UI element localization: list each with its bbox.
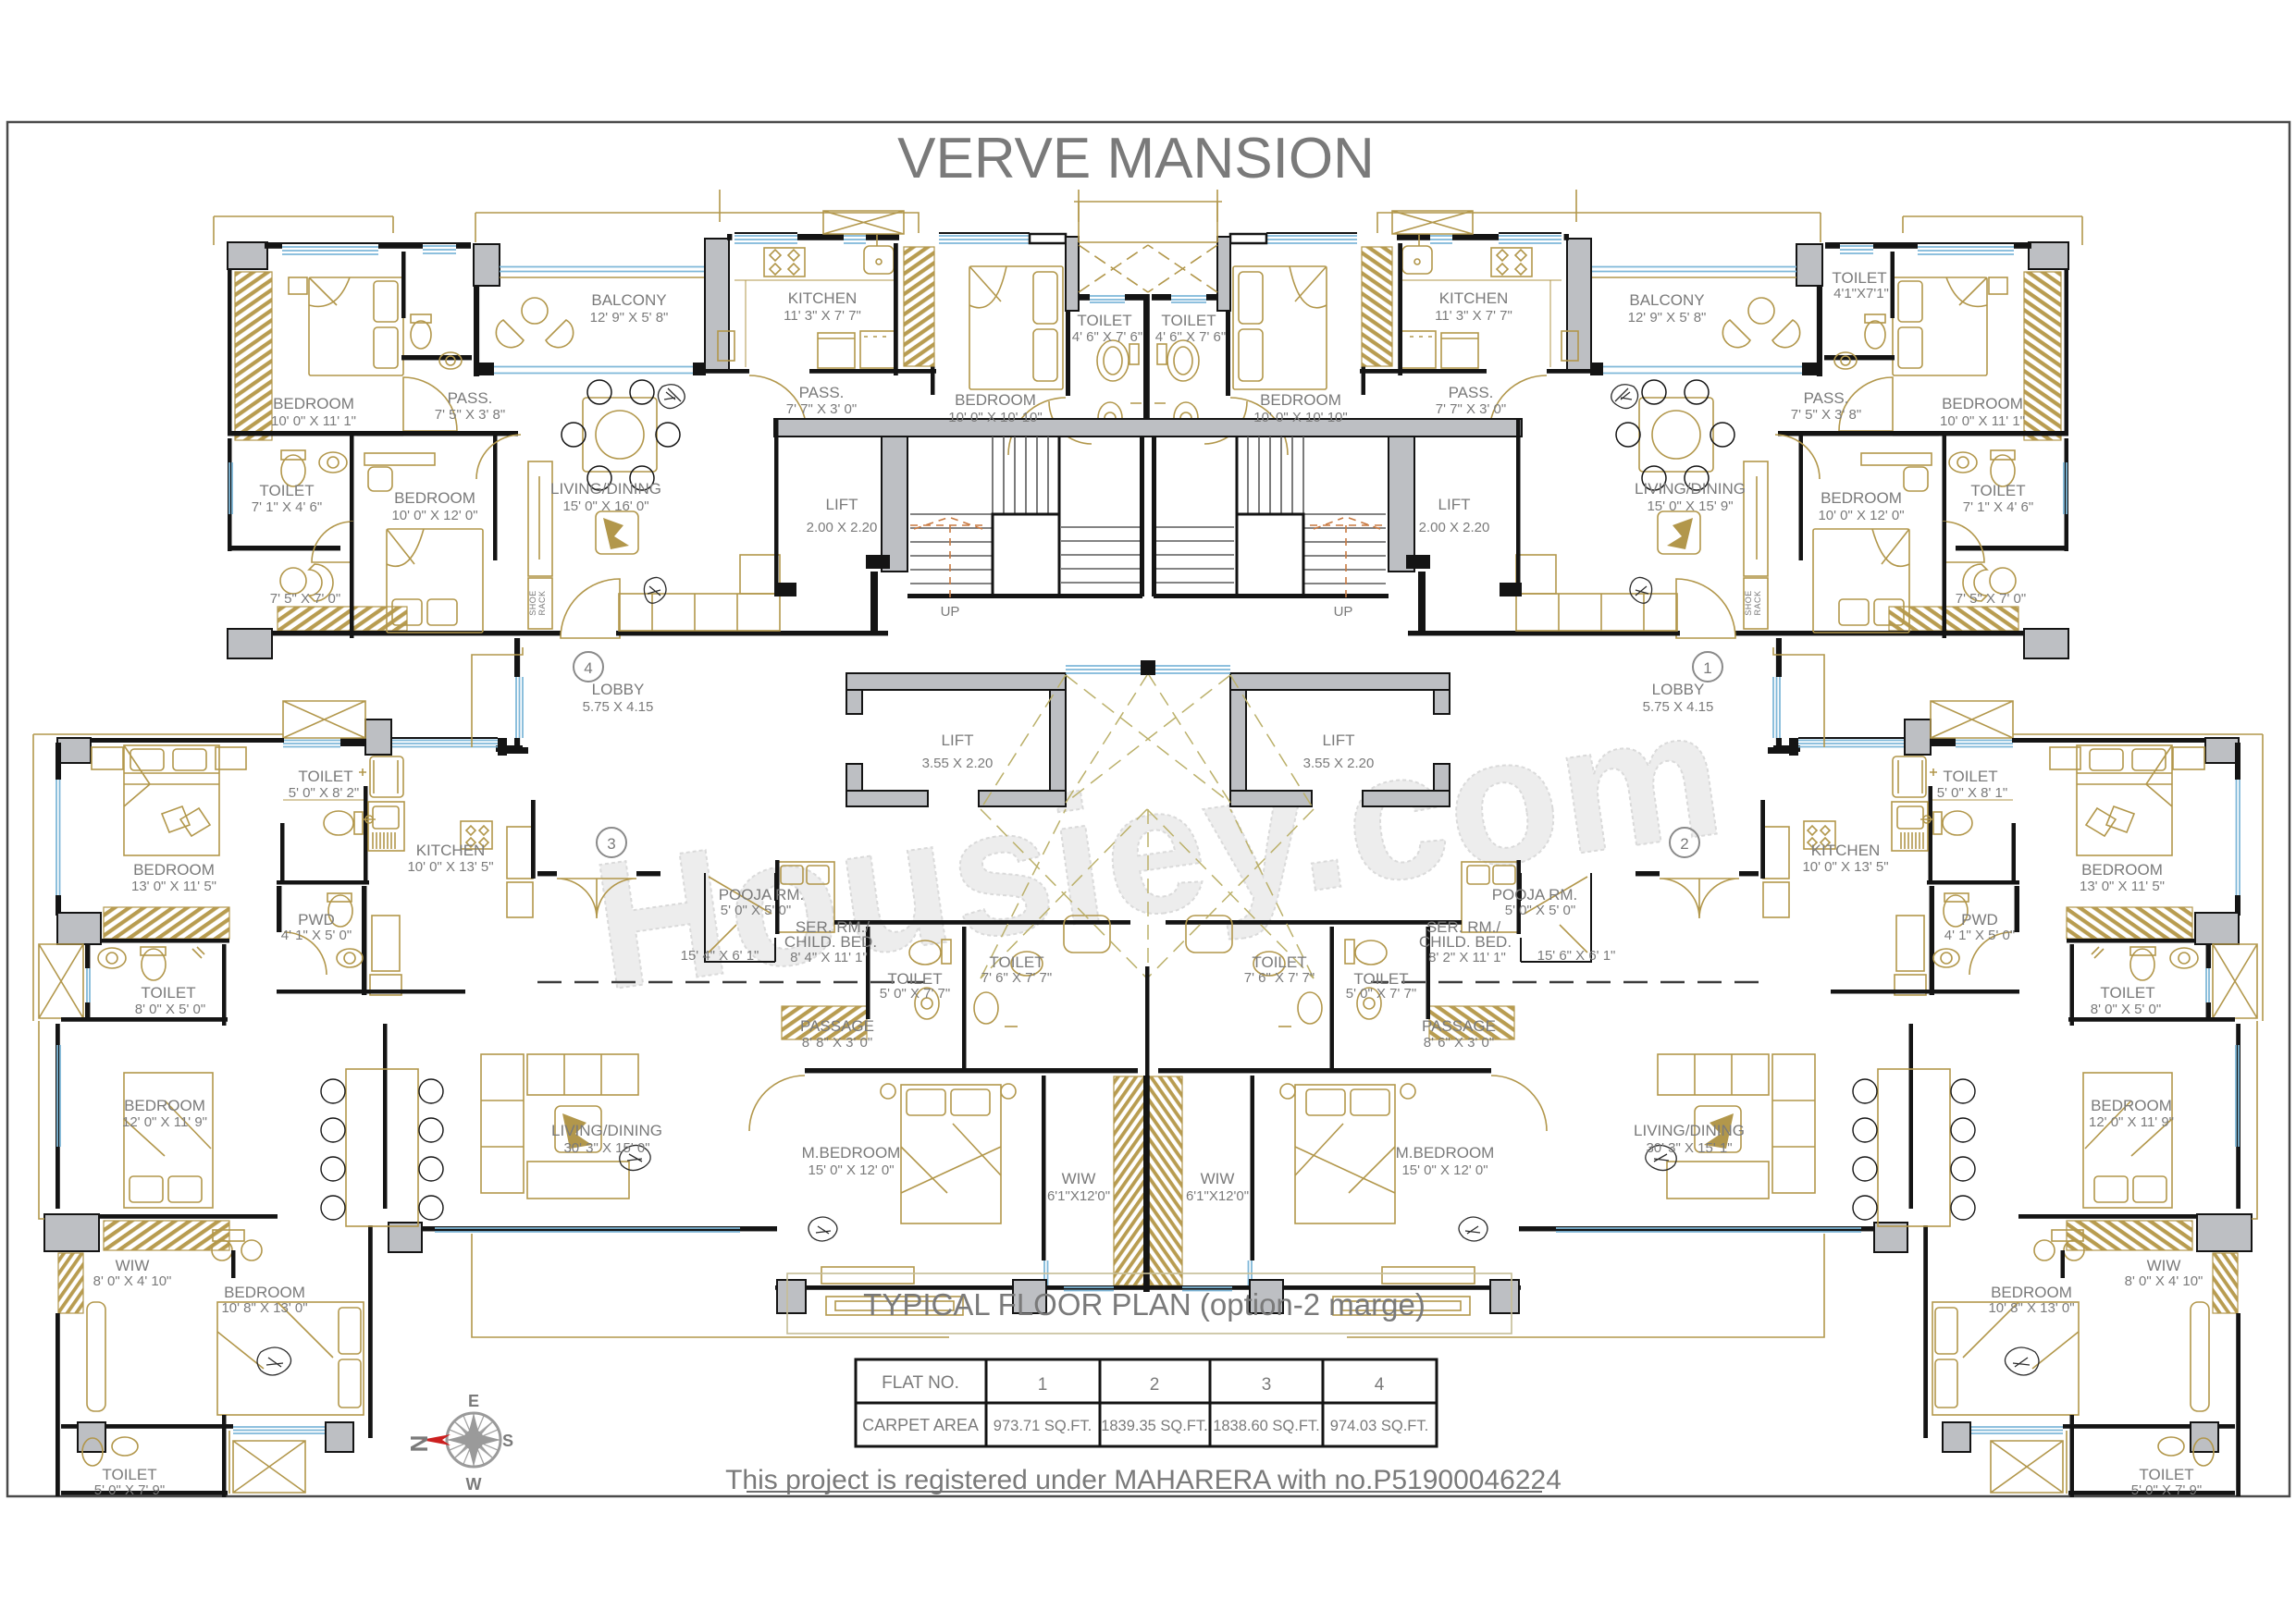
svg-text:12' 0" X 11' 9": 12' 0" X 11' 9" — [2089, 1114, 2174, 1130]
svg-text:BEDROOM: BEDROOM — [1942, 395, 2023, 412]
svg-text:973.71 SQ.FT.: 973.71 SQ.FT. — [994, 1418, 1092, 1434]
svg-text:RACK: RACK — [1753, 590, 1762, 615]
svg-text:5' 0" X 7' 7": 5' 0" X 7' 7" — [1346, 986, 1416, 1002]
svg-text:POOJA RM.: POOJA RM. — [719, 886, 805, 904]
svg-text:UP: UP — [1334, 604, 1353, 620]
svg-text:PWD: PWD — [1961, 911, 1998, 928]
svg-text:N: N — [405, 1435, 433, 1453]
svg-text:TOILET: TOILET — [989, 953, 1043, 971]
svg-text:30' 3" X 15' 1": 30' 3" X 15' 1" — [1646, 1140, 1732, 1156]
svg-text:CHILD. BED.: CHILD. BED. — [784, 933, 877, 951]
svg-text:LIVING/DINING: LIVING/DINING — [550, 480, 661, 498]
svg-text:BEDROOM: BEDROOM — [224, 1284, 305, 1301]
svg-text:PWD: PWD — [298, 911, 335, 928]
svg-text:7' 5" X 3' 8": 7' 5" X 3' 8" — [435, 407, 505, 423]
svg-text:POOJA RM.: POOJA RM. — [1492, 886, 1578, 904]
svg-text:15' 6" X 6' 1": 15' 6" X 6' 1" — [1537, 948, 1616, 964]
svg-text:3.55 X 2.20: 3.55 X 2.20 — [922, 756, 994, 771]
svg-text:8' 2" X 11' 1": 8' 2" X 11' 1" — [1428, 950, 1506, 965]
svg-text:7' 6" X 7' 7": 7' 6" X 7' 7" — [981, 970, 1052, 986]
svg-text:5.75 X 4.15: 5.75 X 4.15 — [1643, 699, 1714, 715]
svg-text:KITCHEN: KITCHEN — [788, 289, 858, 307]
svg-text:4: 4 — [584, 659, 592, 677]
svg-text:3.55 X 2.20: 3.55 X 2.20 — [1303, 756, 1375, 771]
svg-text:RACK: RACK — [537, 590, 547, 615]
svg-text:LIVING/DINING: LIVING/DINING — [1635, 480, 1746, 498]
svg-text:LIFT: LIFT — [826, 496, 858, 513]
svg-text:5' 0" X 7' 7": 5' 0" X 7' 7" — [880, 986, 950, 1002]
svg-text:LIVING/DINING: LIVING/DINING — [1634, 1122, 1745, 1139]
svg-text:4: 4 — [1375, 1375, 1385, 1395]
svg-text:BEDROOM: BEDROOM — [2081, 861, 2163, 879]
svg-text:2.00 X 2.20: 2.00 X 2.20 — [1419, 520, 1490, 535]
svg-text:BEDROOM: BEDROOM — [394, 489, 475, 507]
svg-text:13' 0" X 11' 5": 13' 0" X 11' 5" — [131, 879, 216, 894]
svg-text:E: E — [468, 1392, 479, 1410]
svg-text:8' 8" X 3' 0": 8' 8" X 3' 0" — [802, 1035, 872, 1051]
svg-text:30' 3" X 15' 0": 30' 3" X 15' 0" — [563, 1140, 649, 1156]
svg-text:M.BEDROOM: M.BEDROOM — [802, 1144, 901, 1162]
svg-text:10' 0" X 12' 0": 10' 0" X 12' 0" — [1818, 508, 1904, 523]
svg-text:1839.35 SQ.FT.: 1839.35 SQ.FT. — [1101, 1418, 1208, 1434]
svg-text:12' 0" X 11' 9": 12' 0" X 11' 9" — [122, 1114, 207, 1130]
svg-text:10' 8" X 13' 0": 10' 8" X 13' 0" — [1988, 1300, 2074, 1316]
svg-text:KITCHEN: KITCHEN — [1811, 842, 1881, 859]
svg-text:1: 1 — [1703, 659, 1711, 677]
svg-text:CHILD. BED.: CHILD. BED. — [1419, 933, 1512, 951]
svg-text:4'1"X7'1": 4'1"X7'1" — [1833, 286, 1889, 301]
svg-text:SHOE: SHOE — [528, 590, 537, 616]
svg-text:15' 0" X 15' 9": 15' 0" X 15' 9" — [1647, 498, 1733, 514]
svg-text:5' 0" X 7' 9": 5' 0" X 7' 9" — [2131, 1482, 2202, 1498]
svg-text:2.00 X 2.20: 2.00 X 2.20 — [807, 520, 878, 535]
svg-text:6'1"X12'0": 6'1"X12'0" — [1186, 1188, 1249, 1204]
svg-text:12' 9" X 5' 8": 12' 9" X 5' 8" — [1628, 310, 1707, 326]
svg-text:4' 6" X 7' 6": 4' 6" X 7' 6" — [1072, 329, 1142, 345]
svg-text:7' 5" X 7' 0": 7' 5" X 7' 0" — [1956, 591, 2026, 607]
svg-text:10' 0" X 10' 10": 10' 0" X 10' 10" — [1253, 410, 1347, 425]
svg-text:TOILET: TOILET — [1161, 312, 1216, 329]
svg-text:BEDROOM: BEDROOM — [1821, 489, 1902, 507]
svg-text:TOILET: TOILET — [1943, 768, 1997, 785]
svg-text:W: W — [466, 1475, 482, 1494]
svg-text:5.75 X 4.15: 5.75 X 4.15 — [583, 699, 654, 715]
svg-text:CARPET AREA: CARPET AREA — [862, 1416, 979, 1434]
svg-text:10' 0" X 10' 10": 10' 0" X 10' 10" — [948, 410, 1042, 425]
svg-text:LIFT: LIFT — [1323, 732, 1355, 749]
svg-text:TOILET: TOILET — [102, 1466, 156, 1483]
svg-text:BALCONY: BALCONY — [1629, 291, 1704, 309]
svg-text:BEDROOM: BEDROOM — [2091, 1097, 2172, 1114]
svg-text:12' 9" X 5' 8": 12' 9" X 5' 8" — [590, 310, 669, 326]
svg-text:BEDROOM: BEDROOM — [1260, 391, 1341, 409]
svg-text:7' 1" X 4' 6": 7' 1" X 4' 6" — [1963, 499, 2033, 515]
svg-text:S: S — [502, 1432, 513, 1450]
svg-text:10' 0" X 13' 5": 10' 0" X 13' 5" — [407, 859, 493, 875]
svg-text:TYPICAL FLOOR PLAN (option-2 m: TYPICAL FLOOR PLAN (option-2 marge) — [863, 1287, 1426, 1322]
svg-text:4' 1" X 5' 0": 4' 1" X 5' 0" — [281, 928, 352, 943]
svg-text:10' 0" X 11' 1": 10' 0" X 11' 1" — [271, 413, 356, 429]
svg-text:11' 3" X 7' 7": 11' 3" X 7' 7" — [1435, 308, 1512, 324]
svg-text:5' 0" X 8' 2": 5' 0" X 8' 2" — [289, 785, 359, 801]
svg-text:BEDROOM: BEDROOM — [273, 395, 354, 412]
svg-text:FLAT NO.: FLAT NO. — [882, 1373, 959, 1393]
svg-text:15' 0" X 12' 0": 15' 0" X 12' 0" — [808, 1162, 894, 1178]
svg-text:BEDROOM: BEDROOM — [955, 391, 1036, 409]
svg-text:PASS.: PASS. — [448, 389, 493, 407]
svg-text:PASSAGE: PASSAGE — [800, 1017, 874, 1035]
svg-text:TOILET: TOILET — [141, 984, 195, 1002]
svg-text:TOILET: TOILET — [1252, 953, 1306, 971]
svg-text:WIW: WIW — [2147, 1257, 2181, 1274]
svg-text:M.BEDROOM: M.BEDROOM — [1396, 1144, 1495, 1162]
svg-text:5' 0" X 5' 0": 5' 0" X 5' 0" — [1505, 903, 1575, 918]
svg-text:6'1"X12'0": 6'1"X12'0" — [1047, 1188, 1110, 1204]
svg-text:1838.60 SQ.FT.: 1838.60 SQ.FT. — [1213, 1418, 1320, 1434]
svg-text:SHOE: SHOE — [1744, 590, 1753, 616]
svg-text:7' 5" X 3' 8": 7' 5" X 3' 8" — [1791, 407, 1861, 423]
svg-text:TOILET: TOILET — [2100, 984, 2154, 1002]
svg-text:15' 0" X 12' 0": 15' 0" X 12' 0" — [1401, 1162, 1487, 1178]
svg-text:4' 6" X 7' 6": 4' 6" X 7' 6" — [1155, 329, 1226, 345]
svg-text:PASS.: PASS. — [1449, 384, 1494, 401]
svg-text:UP: UP — [941, 604, 960, 620]
svg-text:BEDROOM: BEDROOM — [133, 861, 215, 879]
svg-text:10' 0" X 12' 0": 10' 0" X 12' 0" — [391, 508, 477, 523]
svg-text:PASS.: PASS. — [1804, 389, 1849, 407]
svg-text:10' 8" X 13' 0": 10' 8" X 13' 0" — [221, 1300, 307, 1316]
svg-text:5' 0" X 8' 1": 5' 0" X 8' 1" — [1937, 785, 2007, 801]
svg-text:8' 4" X 11' 1": 8' 4" X 11' 1" — [790, 950, 868, 965]
svg-text:TOILET: TOILET — [1077, 312, 1131, 329]
svg-text:1: 1 — [1038, 1375, 1048, 1395]
svg-text:15' 0" X 16' 0": 15' 0" X 16' 0" — [562, 498, 648, 514]
svg-text:LOBBY: LOBBY — [1652, 681, 1705, 698]
svg-text:7' 6" X 7' 7": 7' 6" X 7' 7" — [1244, 970, 1315, 986]
svg-text:7' 5" X 7' 0": 7' 5" X 7' 0" — [270, 591, 340, 607]
svg-text:TOILET: TOILET — [2139, 1466, 2193, 1483]
svg-text:15' 4" X 6' 1": 15' 4" X 6' 1" — [681, 948, 759, 964]
svg-text:2: 2 — [1680, 835, 1688, 853]
svg-text:LOBBY: LOBBY — [592, 681, 645, 698]
svg-text:WIW: WIW — [1062, 1170, 1096, 1187]
svg-text:8' 0" X 4' 10": 8' 0" X 4' 10" — [2125, 1273, 2203, 1289]
svg-text:BEDROOM: BEDROOM — [124, 1097, 205, 1114]
svg-text:5' 0" X 5' 0": 5' 0" X 5' 0" — [721, 903, 791, 918]
svg-text:8' 0" X 5' 0": 8' 0" X 5' 0" — [2091, 1002, 2161, 1017]
svg-text:13' 0" X 11' 5": 13' 0" X 11' 5" — [2080, 879, 2165, 894]
svg-text:11' 3" X 7' 7": 11' 3" X 7' 7" — [784, 308, 861, 324]
svg-text:WIW: WIW — [1201, 1170, 1235, 1187]
svg-text:LIFT: LIFT — [1438, 496, 1471, 513]
svg-text:KITCHEN: KITCHEN — [416, 842, 486, 859]
svg-text:2: 2 — [1150, 1375, 1160, 1395]
svg-text:3: 3 — [607, 835, 615, 853]
svg-text:WIW: WIW — [116, 1257, 150, 1274]
svg-text:PASSAGE: PASSAGE — [1422, 1017, 1496, 1035]
svg-text:8' 0" X 5' 0": 8' 0" X 5' 0" — [135, 1002, 205, 1017]
svg-text:974.03 SQ.FT.: 974.03 SQ.FT. — [1330, 1418, 1428, 1434]
svg-text:8' 0" X 4' 10": 8' 0" X 4' 10" — [93, 1273, 172, 1289]
svg-text:TOILET: TOILET — [298, 768, 352, 785]
svg-text:7' 7" X 3' 0": 7' 7" X 3' 0" — [1436, 401, 1506, 417]
svg-text:10' 0" X 13' 5": 10' 0" X 13' 5" — [1802, 859, 1888, 875]
svg-text:7' 7" X 3' 0": 7' 7" X 3' 0" — [786, 401, 857, 417]
svg-text:LIVING/DINING: LIVING/DINING — [551, 1122, 662, 1139]
svg-text:5' 0" X 7' 9": 5' 0" X 7' 9" — [94, 1482, 165, 1498]
svg-text:BEDROOM: BEDROOM — [1991, 1284, 2072, 1301]
svg-text:TOILET: TOILET — [1970, 482, 2025, 499]
svg-text:TOILET: TOILET — [1832, 269, 1886, 287]
svg-text:KITCHEN: KITCHEN — [1439, 289, 1509, 307]
svg-text:PASS.: PASS. — [799, 384, 845, 401]
svg-text:BALCONY: BALCONY — [591, 291, 666, 309]
svg-text:TOILET: TOILET — [259, 482, 314, 499]
svg-text:7' 1" X 4' 6": 7' 1" X 4' 6" — [252, 499, 322, 515]
svg-text:10' 0" X 11' 1": 10' 0" X 11' 1" — [1940, 413, 2025, 429]
svg-text:8' 6" X 3' 0": 8' 6" X 3' 0" — [1424, 1035, 1494, 1051]
svg-text:VERVE MANSION: VERVE MANSION — [897, 127, 1375, 191]
svg-text:4' 1" X 5' 0": 4' 1" X 5' 0" — [1944, 928, 2015, 943]
svg-text:LIFT: LIFT — [942, 732, 974, 749]
svg-text:3: 3 — [1262, 1375, 1272, 1395]
